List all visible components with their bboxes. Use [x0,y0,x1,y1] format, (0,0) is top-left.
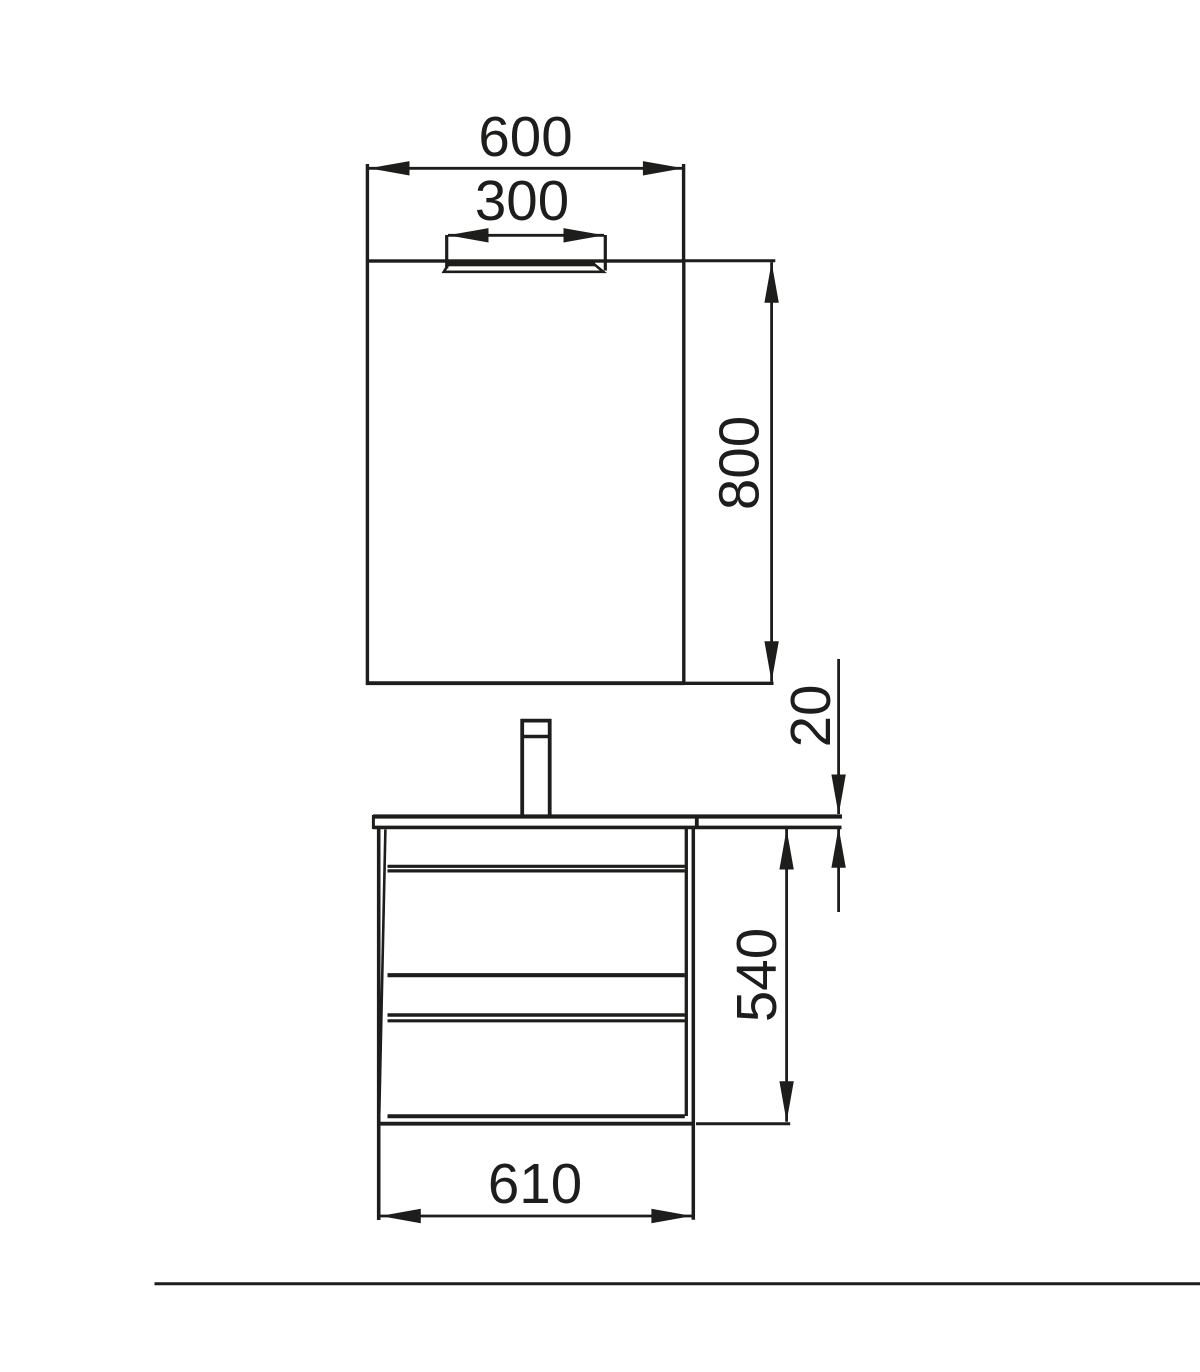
svg-text:20: 20 [779,685,842,748]
svg-text:600: 600 [478,105,572,168]
svg-text:610: 610 [488,1152,582,1215]
svg-text:540: 540 [725,928,788,1022]
svg-text:800: 800 [708,416,771,510]
svg-text:300: 300 [475,169,569,232]
